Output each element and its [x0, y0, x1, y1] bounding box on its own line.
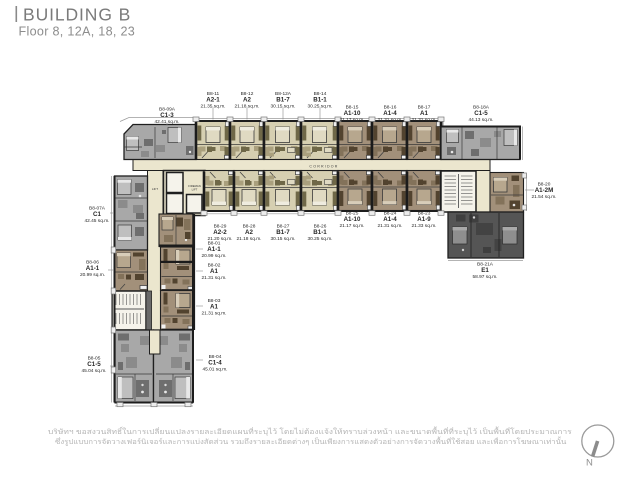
svg-text:30.25 sq.m.: 30.25 sq.m. — [307, 104, 332, 110]
svg-text:30.15 sq.m.: 30.15 sq.m. — [270, 104, 295, 110]
svg-text:A2: A2 — [245, 229, 253, 236]
svg-text:20.99 sq.m.: 20.99 sq.m. — [201, 253, 226, 259]
svg-text:21.18 sq.m.: 21.18 sq.m. — [236, 236, 261, 242]
svg-text:C1: C1 — [93, 211, 101, 218]
svg-text:Floor 8, 12A, 18, 23: Floor 8, 12A, 18, 23 — [19, 25, 136, 39]
svg-text:LIFT: LIFT — [152, 187, 158, 191]
svg-text:21.54 sq.m.: 21.54 sq.m. — [531, 194, 556, 200]
svg-text:A1: A1 — [420, 110, 428, 117]
svg-text:21.31 sq.m.: 21.31 sq.m. — [411, 117, 436, 123]
svg-text:A2-1: A2-1 — [206, 97, 220, 104]
svg-text:21.31 sq.m.: 21.31 sq.m. — [201, 311, 226, 317]
svg-text:B1-7: B1-7 — [276, 229, 290, 236]
svg-text:C1-5: C1-5 — [474, 110, 488, 117]
svg-text:21.35 sq.m.: 21.35 sq.m. — [200, 104, 225, 110]
svg-text:A1-4: A1-4 — [383, 110, 397, 117]
svg-text:A1-1: A1-1 — [207, 246, 221, 253]
svg-text:B1-7: B1-7 — [276, 97, 290, 104]
svg-text:30.25 sq.m.: 30.25 sq.m. — [307, 236, 332, 242]
svg-text:45.04 sq.m.: 45.04 sq.m. — [81, 368, 106, 374]
svg-text:44.13 sq.m.: 44.13 sq.m. — [468, 117, 493, 123]
svg-text:A2: A2 — [243, 97, 251, 104]
svg-text:A2-2: A2-2 — [213, 229, 227, 236]
svg-text:21.31 sq.m.: 21.31 sq.m. — [377, 117, 402, 123]
svg-text:B1-1: B1-1 — [313, 97, 327, 104]
svg-text:A1-10: A1-10 — [344, 110, 361, 117]
svg-text:A1-10: A1-10 — [344, 216, 361, 223]
svg-text:ซึ่งรูปแบบการจัดวางเฟอร์นิเจอร: ซึ่งรูปแบบการจัดวางเฟอร์นิเจอร์และการแบ่… — [55, 436, 566, 445]
svg-text:A1: A1 — [210, 268, 218, 275]
svg-text:21.17 sq.m.: 21.17 sq.m. — [339, 223, 364, 229]
svg-text:21.31 sq.m.: 21.31 sq.m. — [201, 275, 226, 281]
svg-text:21.31 sq.m.: 21.31 sq.m. — [377, 223, 402, 229]
svg-text:21.18 sq.m.: 21.18 sq.m. — [234, 104, 259, 110]
svg-text:A1-9: A1-9 — [417, 216, 431, 223]
svg-text:58.97 sq.m.: 58.97 sq.m. — [472, 274, 497, 280]
svg-text:42.41 sq.m.: 42.41 sq.m. — [154, 119, 179, 125]
svg-text:20.99 sq.m.: 20.99 sq.m. — [80, 272, 105, 278]
svg-text:A1: A1 — [210, 304, 218, 311]
svg-text:A1-4: A1-4 — [383, 216, 397, 223]
svg-text:บริษัทฯ ขอสงวนสิทธิ์ในการเปลี่: บริษัทฯ ขอสงวนสิทธิ์ในการเปลี่ยนแปลงรายล… — [48, 426, 572, 436]
svg-text:21.33 sq.m.: 21.33 sq.m. — [411, 223, 436, 229]
svg-text:42.45 sq.m.: 42.45 sq.m. — [84, 218, 109, 224]
svg-text:30.15 sq.m.: 30.15 sq.m. — [270, 236, 295, 242]
svg-text:C1-4: C1-4 — [208, 360, 222, 367]
svg-text:LIFT: LIFT — [192, 188, 198, 192]
svg-text:45.01 sq.m.: 45.01 sq.m. — [202, 367, 227, 373]
svg-text:E1: E1 — [481, 267, 489, 274]
svg-text:CORRIDOR: CORRIDOR — [309, 164, 338, 168]
svg-text:A1-2M: A1-2M — [535, 187, 554, 194]
svg-text:A1-1: A1-1 — [86, 265, 100, 272]
svg-text:N: N — [586, 458, 593, 469]
svg-text:C1-5: C1-5 — [87, 361, 101, 368]
svg-text:21.17 sq.m.: 21.17 sq.m. — [339, 117, 364, 123]
svg-text:C1-3: C1-3 — [160, 112, 174, 119]
svg-text:BUILDING B: BUILDING B — [23, 4, 131, 24]
svg-text:B1-1: B1-1 — [313, 229, 327, 236]
